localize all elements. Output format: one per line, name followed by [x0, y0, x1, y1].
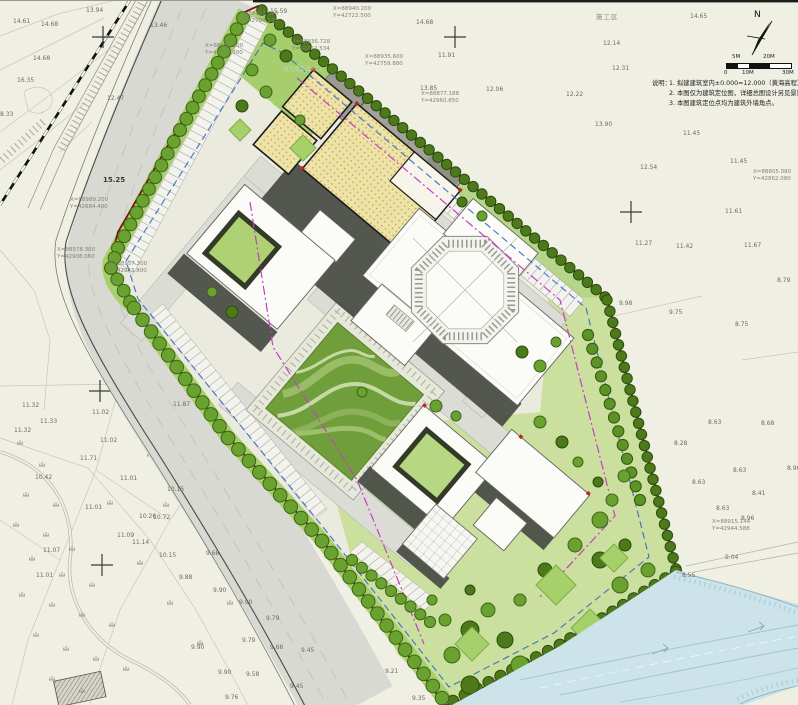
tree: [417, 667, 431, 681]
tree: [405, 601, 416, 612]
tree: [514, 594, 526, 606]
tree: [613, 426, 624, 437]
tree: [357, 387, 367, 397]
tree: [551, 337, 561, 347]
tree: [604, 398, 615, 409]
sheet-top-border-left: [0, 0, 253, 1]
tree: [630, 481, 641, 492]
tree: [634, 494, 645, 505]
tree: [600, 384, 611, 395]
tree: [636, 429, 646, 439]
tree: [226, 306, 238, 318]
tree: [196, 396, 210, 410]
tree: [608, 412, 619, 423]
tree: [645, 463, 655, 473]
tree: [602, 295, 612, 305]
tree: [143, 183, 156, 196]
site-plan-drawing: [0, 0, 798, 705]
tree: [587, 343, 598, 354]
tree: [439, 614, 451, 626]
tree: [266, 12, 276, 22]
tree: [457, 197, 467, 207]
tree: [408, 655, 422, 669]
tree: [207, 287, 217, 297]
tree: [529, 233, 539, 243]
tree: [534, 360, 546, 372]
tree: [582, 277, 592, 287]
tree: [136, 313, 150, 327]
tree: [187, 384, 201, 398]
tree: [199, 79, 212, 92]
tree: [252, 466, 266, 480]
tree: [380, 108, 390, 118]
tree: [361, 595, 375, 609]
tree: [610, 328, 620, 338]
tree: [593, 477, 603, 487]
tree: [336, 71, 346, 81]
tree: [424, 145, 434, 155]
tree: [433, 152, 443, 162]
site-plan: 14.6113.9414.6813.4614.6816.3512.478.331…: [0, 0, 798, 705]
tree: [654, 497, 664, 507]
tree: [621, 453, 632, 464]
tree: [218, 45, 231, 58]
tree: [430, 400, 442, 412]
tree: [389, 115, 399, 125]
tree: [346, 554, 357, 565]
tree: [144, 325, 158, 339]
tree: [284, 500, 298, 514]
tree: [204, 408, 218, 422]
tree: [424, 616, 435, 627]
tree: [641, 563, 655, 577]
tree: [118, 230, 131, 243]
tree: [592, 512, 608, 528]
tree: [395, 593, 406, 604]
tree: [294, 511, 308, 525]
tree: [136, 194, 149, 207]
tree: [582, 329, 593, 340]
tree: [221, 431, 235, 445]
tree: [352, 583, 366, 597]
tree: [442, 159, 452, 169]
tree: [280, 50, 292, 62]
tree: [161, 147, 174, 160]
tree: [573, 270, 583, 280]
tree: [427, 595, 437, 605]
sheet-top-border: [253, 0, 798, 2]
tree: [230, 23, 243, 36]
tree: [617, 439, 628, 450]
tree: [211, 56, 224, 69]
tree: [398, 643, 412, 657]
tree: [612, 577, 628, 593]
tree: [274, 20, 284, 30]
tree: [512, 218, 522, 228]
tree: [366, 570, 377, 581]
tree: [616, 351, 626, 361]
tree: [435, 691, 449, 705]
tree: [642, 452, 652, 462]
tree: [568, 538, 582, 552]
tree: [659, 519, 669, 529]
tree: [622, 373, 632, 383]
tree: [415, 137, 425, 147]
tree: [205, 68, 218, 81]
tree: [398, 123, 408, 133]
tree: [371, 607, 385, 621]
tree: [606, 494, 618, 506]
tree: [618, 470, 630, 482]
tree: [639, 441, 649, 451]
tree: [415, 609, 426, 620]
tree: [591, 357, 602, 368]
tree: [180, 112, 193, 125]
tree: [315, 534, 329, 548]
tree: [605, 306, 615, 316]
tree: [477, 189, 487, 199]
tree: [257, 5, 267, 15]
tree: [665, 541, 675, 551]
tree: [573, 457, 583, 467]
tree: [310, 49, 320, 59]
tree: [127, 301, 141, 315]
tree: [486, 196, 496, 206]
tree: [389, 631, 403, 645]
tree: [481, 603, 495, 617]
tree: [477, 211, 487, 221]
tree: [246, 64, 258, 76]
tree: [538, 240, 548, 250]
tree: [345, 78, 355, 88]
tree: [628, 396, 638, 406]
tree: [631, 407, 641, 417]
tree: [591, 284, 601, 294]
tree: [356, 562, 367, 573]
tree: [236, 100, 248, 112]
tree: [521, 226, 531, 236]
tree: [625, 385, 635, 395]
tree: [648, 474, 658, 484]
tree: [242, 454, 256, 468]
tree: [608, 317, 618, 327]
tree: [354, 86, 364, 96]
tree: [167, 135, 180, 148]
tree: [465, 585, 475, 595]
tree: [186, 101, 199, 114]
tree: [451, 411, 461, 421]
tree: [556, 255, 566, 265]
tree: [371, 101, 381, 111]
tree: [656, 508, 666, 518]
tree: [547, 248, 557, 258]
tree: [237, 12, 250, 25]
octagon-atrium: [411, 236, 518, 343]
tree: [651, 485, 661, 495]
tree: [124, 218, 137, 231]
tree: [444, 647, 460, 663]
tree: [556, 436, 568, 448]
tree: [494, 204, 504, 214]
tree: [260, 86, 272, 98]
tree: [161, 349, 175, 363]
tree: [406, 130, 416, 140]
tree: [305, 523, 319, 537]
tree: [292, 34, 302, 44]
tree: [334, 558, 348, 572]
tree: [633, 418, 643, 428]
tree: [595, 371, 606, 382]
tree: [613, 340, 623, 350]
tree: [468, 181, 478, 191]
tree: [283, 27, 293, 37]
tree: [153, 337, 167, 351]
tree: [450, 167, 460, 177]
tree: [149, 171, 162, 184]
tree: [385, 585, 396, 596]
tree: [534, 416, 546, 428]
tree: [497, 632, 513, 648]
tree: [565, 262, 575, 272]
tree: [224, 34, 237, 47]
tree: [193, 90, 206, 103]
tree: [111, 273, 124, 286]
tree: [324, 546, 338, 560]
tree: [213, 419, 227, 433]
tree: [301, 42, 311, 52]
tree: [619, 362, 629, 372]
tree: [362, 93, 372, 103]
tree: [232, 443, 246, 457]
tree: [380, 619, 394, 633]
tree: [459, 174, 469, 184]
tree: [295, 115, 305, 125]
tree: [376, 578, 387, 589]
tree: [117, 284, 130, 297]
tree: [318, 56, 328, 66]
tree: [155, 159, 168, 172]
tree: [619, 539, 631, 551]
tree: [170, 360, 184, 374]
tree: [343, 570, 357, 584]
tree: [130, 206, 143, 219]
tree: [263, 477, 277, 491]
tree: [516, 346, 528, 358]
tree: [174, 124, 187, 137]
tree: [273, 488, 287, 502]
tree: [662, 530, 672, 540]
tree: [179, 372, 193, 386]
tree: [105, 262, 118, 275]
tree: [426, 679, 440, 693]
tree: [327, 64, 337, 74]
tree: [461, 676, 479, 694]
tree: [668, 553, 678, 563]
tree: [264, 34, 276, 46]
tree: [503, 211, 513, 221]
